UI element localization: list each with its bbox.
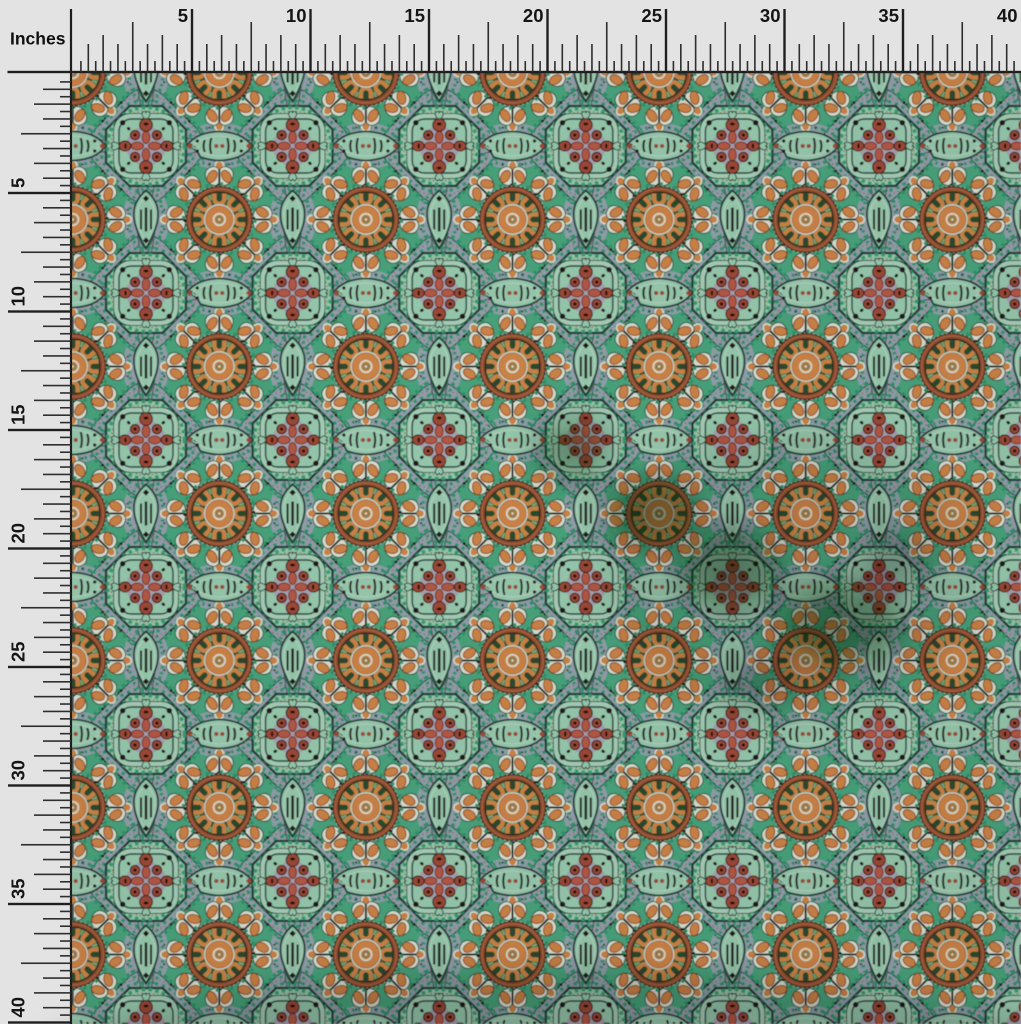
svg-text:20: 20 — [8, 523, 29, 544]
svg-text:40: 40 — [8, 997, 29, 1018]
svg-text:10: 10 — [286, 5, 307, 26]
svg-text:5: 5 — [8, 178, 29, 188]
svg-text:35: 35 — [8, 878, 29, 899]
svg-text:30: 30 — [8, 760, 29, 781]
svg-text:35: 35 — [878, 5, 899, 26]
svg-text:Inches: Inches — [10, 29, 66, 49]
svg-text:15: 15 — [404, 5, 425, 26]
svg-text:5: 5 — [178, 5, 188, 26]
svg-text:40: 40 — [997, 5, 1018, 26]
svg-text:10: 10 — [8, 286, 29, 307]
svg-text:30: 30 — [760, 5, 781, 26]
svg-text:25: 25 — [8, 641, 29, 662]
svg-text:15: 15 — [8, 404, 29, 425]
svg-text:20: 20 — [523, 5, 544, 26]
svg-text:25: 25 — [641, 5, 662, 26]
